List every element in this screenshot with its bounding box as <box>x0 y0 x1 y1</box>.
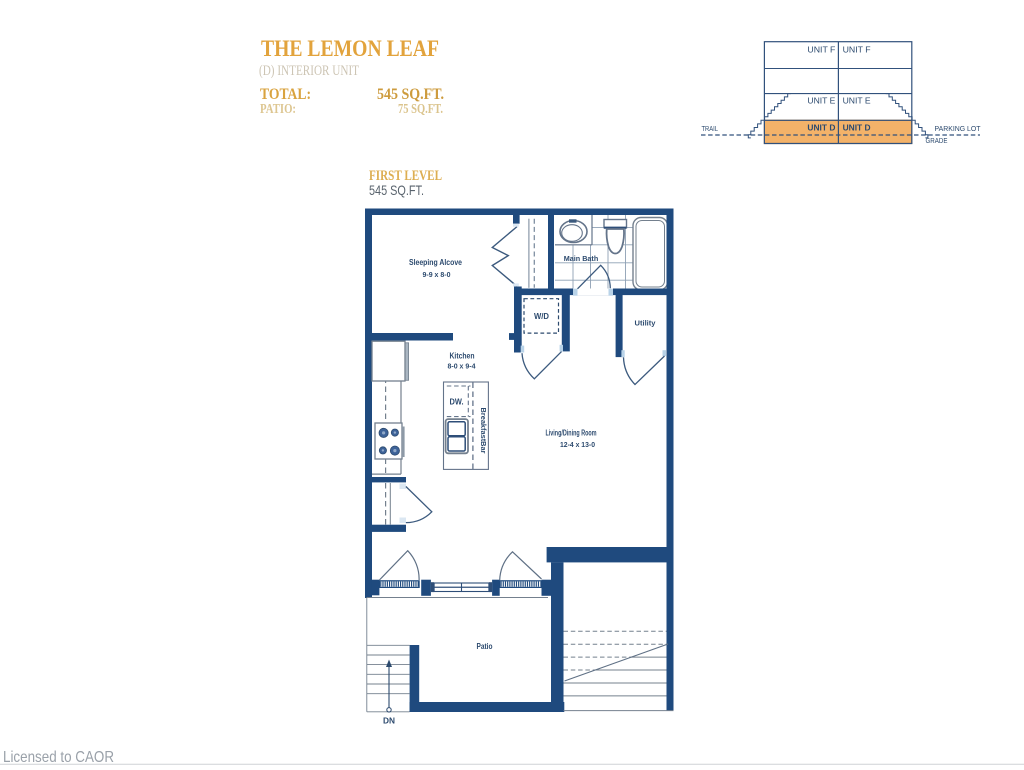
svg-text:DW.: DW. <box>450 398 464 407</box>
svg-text:DN: DN <box>383 717 395 726</box>
svg-text:Living/Dining Room: Living/Dining Room <box>546 429 597 438</box>
svg-text:GRADE: GRADE <box>926 138 948 145</box>
svg-text:UNIT D: UNIT D <box>807 123 835 133</box>
svg-text:75 SQ.FT.: 75 SQ.FT. <box>398 102 443 117</box>
svg-text:UNIT E: UNIT E <box>807 96 835 106</box>
svg-text:UNIT D: UNIT D <box>843 123 871 133</box>
svg-text:TRAIL: TRAIL <box>702 126 719 133</box>
svg-text:BreakfastBar: BreakfastBar <box>479 408 488 454</box>
svg-text:12-4 x 13-0: 12-4 x 13-0 <box>560 440 595 449</box>
svg-text:UNIT F: UNIT F <box>807 45 835 55</box>
svg-text:TOTAL:: TOTAL: <box>260 86 311 103</box>
svg-text:(D) INTERIOR UNIT: (D) INTERIOR UNIT <box>259 63 359 79</box>
svg-text:UNIT E: UNIT E <box>843 96 871 106</box>
svg-text:Sleeping Alcove: Sleeping Alcove <box>409 258 463 267</box>
svg-text:W/D: W/D <box>534 312 549 321</box>
svg-text:Main Bath: Main Bath <box>564 254 599 263</box>
svg-text:Kitchen: Kitchen <box>450 352 475 361</box>
svg-text:Patio: Patio <box>477 642 493 651</box>
svg-text:8-0 x 9-4: 8-0 x 9-4 <box>448 362 477 371</box>
svg-text:545 SQ.FT.: 545 SQ.FT. <box>369 182 424 198</box>
svg-text:UNIT F: UNIT F <box>843 45 871 55</box>
svg-text:Licensed to CAOR: Licensed to CAOR <box>3 749 114 765</box>
svg-text:545 SQ.FT.: 545 SQ.FT. <box>377 86 444 103</box>
svg-text:PATIO:: PATIO: <box>260 102 296 117</box>
svg-text:PARKING LOT: PARKING LOT <box>935 126 982 133</box>
svg-text:THE LEMON LEAF: THE LEMON LEAF <box>261 36 439 61</box>
svg-text:9-9 x 8-0: 9-9 x 8-0 <box>423 270 451 279</box>
svg-text:Utility: Utility <box>635 319 657 328</box>
